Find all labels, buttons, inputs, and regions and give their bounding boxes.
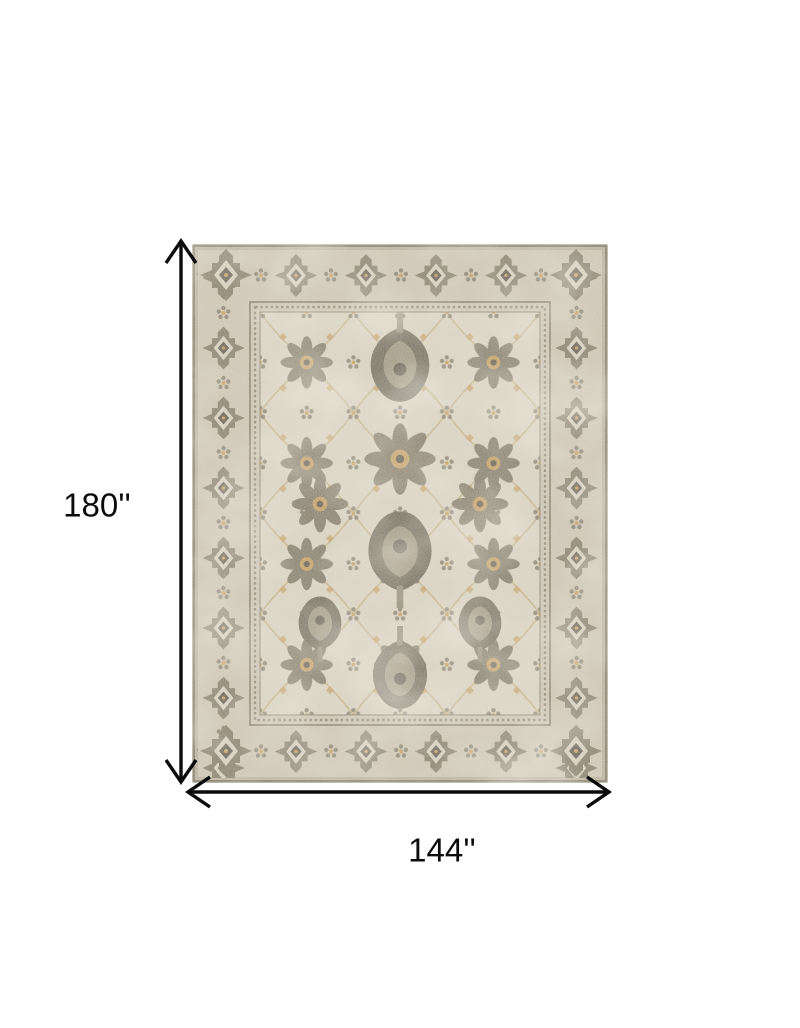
product-dimension-diagram: 180'' 144'' — [0, 0, 800, 1028]
rug-photo-svg — [192, 244, 608, 783]
rug-image — [192, 244, 608, 783]
width-dimension-label: 144'' — [408, 834, 476, 867]
height-dimension-label: 180'' — [63, 489, 131, 522]
rug-distress-texture — [192, 244, 608, 783]
